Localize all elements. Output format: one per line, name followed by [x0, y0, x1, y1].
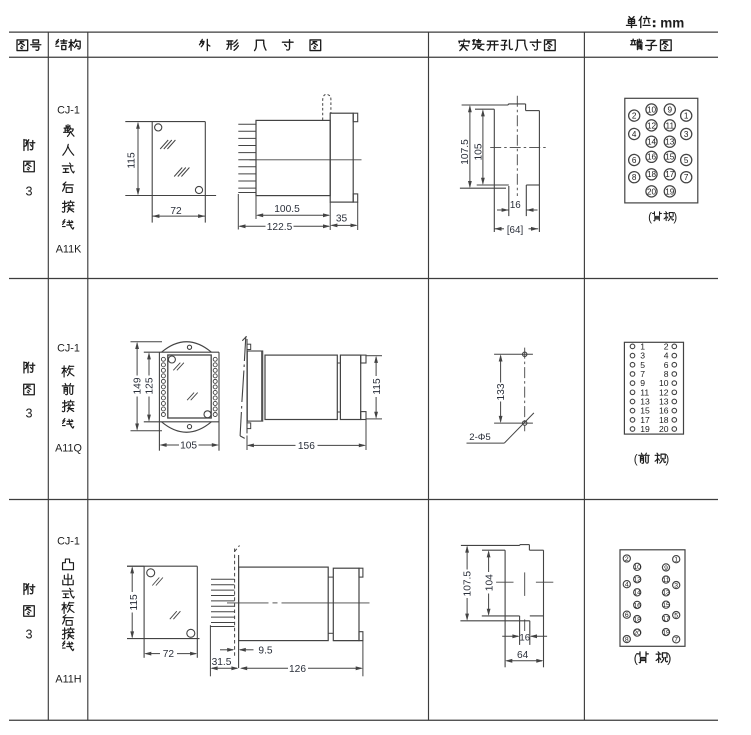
svg-text:20: 20 — [633, 630, 641, 637]
svg-text:115: 115 — [372, 378, 383, 395]
svg-text:6: 6 — [625, 612, 629, 619]
svg-text:115: 115 — [126, 152, 137, 169]
svg-text:115: 115 — [129, 594, 140, 611]
svg-text:107.5: 107.5 — [462, 571, 473, 597]
svg-text:4: 4 — [625, 582, 629, 589]
svg-text:107.5: 107.5 — [460, 139, 471, 165]
svg-text:14: 14 — [633, 590, 641, 597]
svg-text:19: 19 — [640, 424, 650, 434]
svg-text:16: 16 — [647, 153, 657, 162]
svg-text:35: 35 — [336, 214, 348, 225]
svg-text:A11K: A11K — [56, 243, 82, 255]
svg-text:3: 3 — [684, 130, 689, 139]
svg-text:18: 18 — [633, 617, 641, 624]
svg-text:20: 20 — [659, 424, 669, 434]
svg-text:31.5: 31.5 — [212, 657, 232, 668]
svg-text:72: 72 — [163, 649, 175, 660]
svg-text:[64]: [64] — [507, 225, 524, 236]
svg-text:5: 5 — [684, 156, 689, 165]
svg-text:9: 9 — [664, 565, 668, 572]
svg-text:11: 11 — [666, 121, 675, 130]
svg-text:3: 3 — [25, 628, 32, 642]
svg-text:16: 16 — [510, 200, 521, 211]
svg-text:72: 72 — [170, 206, 182, 217]
svg-text:CJ-1: CJ-1 — [57, 342, 80, 354]
svg-text:13: 13 — [665, 138, 675, 147]
svg-text:CJ-1: CJ-1 — [57, 104, 80, 116]
svg-text:9: 9 — [668, 105, 673, 114]
svg-text:5: 5 — [674, 613, 678, 620]
svg-text:9.5: 9.5 — [258, 646, 272, 657]
svg-text:A11Q: A11Q — [55, 442, 82, 454]
svg-text:2-Φ5: 2-Φ5 — [469, 432, 491, 443]
svg-text:125: 125 — [144, 377, 155, 394]
svg-text:15: 15 — [662, 602, 670, 609]
svg-text:8: 8 — [632, 173, 637, 182]
svg-text:3: 3 — [25, 185, 32, 199]
svg-text:16: 16 — [633, 602, 641, 609]
svg-text:19: 19 — [665, 187, 675, 196]
svg-text:13: 13 — [662, 590, 670, 597]
svg-text:6: 6 — [632, 156, 637, 165]
svg-text:17: 17 — [665, 170, 675, 179]
svg-text:149: 149 — [132, 377, 143, 394]
svg-text:15: 15 — [665, 153, 675, 162]
svg-text:19: 19 — [662, 630, 670, 637]
svg-text:(: ( — [634, 651, 639, 666]
svg-text:2: 2 — [625, 556, 629, 563]
svg-text:156: 156 — [298, 441, 315, 452]
svg-text:12: 12 — [647, 121, 657, 130]
svg-text:18: 18 — [647, 170, 657, 179]
svg-text:14: 14 — [647, 138, 657, 147]
svg-text:64: 64 — [517, 650, 529, 661]
svg-text:2: 2 — [632, 112, 637, 121]
svg-text:7: 7 — [674, 637, 678, 644]
svg-text:133: 133 — [496, 383, 507, 400]
svg-text:3: 3 — [25, 407, 32, 421]
svg-text:mm: mm — [660, 16, 684, 31]
svg-text:105: 105 — [180, 441, 197, 452]
svg-text:17: 17 — [662, 615, 670, 622]
svg-text:7: 7 — [684, 173, 689, 182]
svg-text:126: 126 — [289, 664, 306, 675]
svg-text:104: 104 — [485, 574, 496, 591]
svg-text:CJ-1: CJ-1 — [57, 535, 80, 547]
svg-text:): ) — [665, 454, 669, 466]
svg-text:A11H: A11H — [55, 673, 81, 685]
svg-text:): ) — [673, 212, 677, 224]
svg-text:10: 10 — [647, 105, 657, 114]
svg-text:): ) — [667, 651, 671, 666]
svg-text:1: 1 — [684, 112, 689, 121]
svg-text:1: 1 — [674, 557, 678, 564]
svg-text:11: 11 — [662, 577, 669, 584]
svg-text:12: 12 — [633, 577, 641, 584]
svg-text:16: 16 — [519, 632, 530, 643]
svg-text:3: 3 — [674, 583, 678, 590]
svg-text:122.5: 122.5 — [267, 222, 293, 233]
svg-text:(: ( — [634, 454, 638, 466]
svg-text:100.5: 100.5 — [274, 204, 300, 215]
svg-text:4: 4 — [632, 130, 637, 139]
svg-text:20: 20 — [647, 187, 657, 196]
svg-text:10: 10 — [633, 564, 641, 571]
svg-text:105: 105 — [473, 143, 484, 160]
svg-text:(: ( — [648, 212, 652, 224]
svg-text:8: 8 — [625, 637, 629, 644]
